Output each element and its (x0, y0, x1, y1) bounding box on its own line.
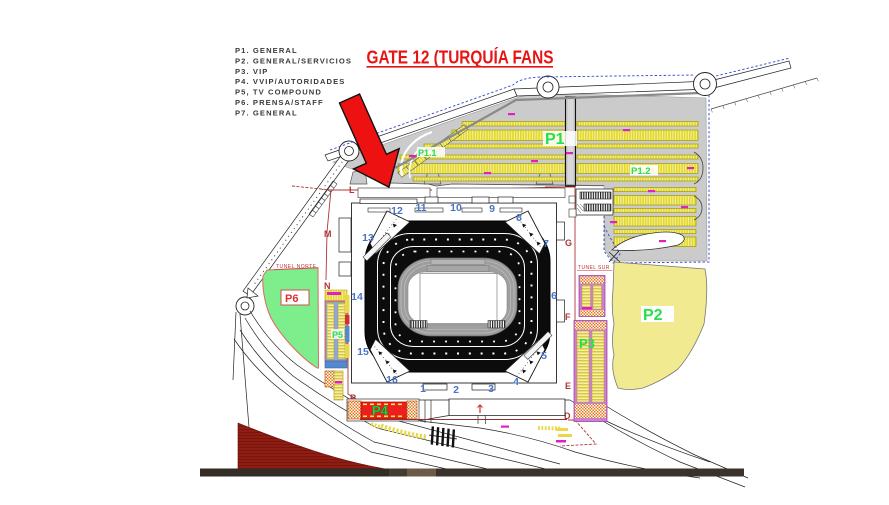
svg-text:7: 7 (543, 238, 549, 250)
svg-text:P2. GENERAL/SERVICIOS: P2. GENERAL/SERVICIOS (235, 56, 352, 65)
svg-text:TUNEL SUR: TUNEL SUR (578, 265, 610, 271)
svg-text:P4. VVIP/AUTORIDADES: P4. VVIP/AUTORIDADES (235, 77, 345, 86)
svg-text:10: 10 (450, 202, 462, 214)
svg-text:P2: P2 (643, 307, 663, 324)
svg-text:P3: P3 (579, 336, 595, 351)
svg-text:8: 8 (516, 212, 522, 224)
svg-text:16: 16 (386, 374, 398, 386)
svg-text:M: M (324, 229, 332, 239)
svg-text:F: F (565, 312, 571, 322)
svg-text:P6. PRENSA/STAFF: P6. PRENSA/STAFF (235, 98, 324, 107)
svg-text:1: 1 (420, 383, 426, 395)
svg-text:P7. GENERAL: P7. GENERAL (235, 108, 298, 117)
svg-text:4: 4 (513, 376, 519, 388)
svg-text:12: 12 (391, 205, 403, 217)
svg-text:P1. GENERAL: P1. GENERAL (235, 46, 298, 55)
svg-text:GATE 12 (TURQUÍA FANS: GATE 12 (TURQUÍA FANS (367, 47, 554, 68)
svg-text:L: L (349, 185, 355, 195)
svg-text:E: E (565, 381, 571, 391)
svg-text:P1.2: P1.2 (631, 166, 651, 177)
svg-text:9: 9 (489, 203, 495, 215)
svg-text:2: 2 (453, 384, 459, 396)
svg-text:6: 6 (551, 290, 557, 302)
svg-text:P4: P4 (372, 403, 389, 418)
svg-text:P5, TV COMPOUND: P5, TV COMPOUND (235, 88, 322, 97)
svg-text:15: 15 (357, 346, 369, 358)
svg-text:P3. VIP: P3. VIP (235, 67, 268, 76)
svg-text:P6: P6 (285, 293, 298, 305)
svg-text:P1: P1 (545, 131, 565, 148)
svg-text:14: 14 (351, 291, 363, 303)
svg-text:3: 3 (488, 383, 494, 395)
svg-text:11: 11 (415, 202, 426, 214)
svg-text:5: 5 (541, 350, 547, 362)
svg-text:P1.1: P1.1 (418, 148, 437, 158)
svg-text:P5: P5 (332, 330, 343, 340)
svg-text:N: N (324, 281, 331, 291)
svg-text:13: 13 (362, 232, 374, 244)
svg-text:G: G (565, 238, 572, 248)
